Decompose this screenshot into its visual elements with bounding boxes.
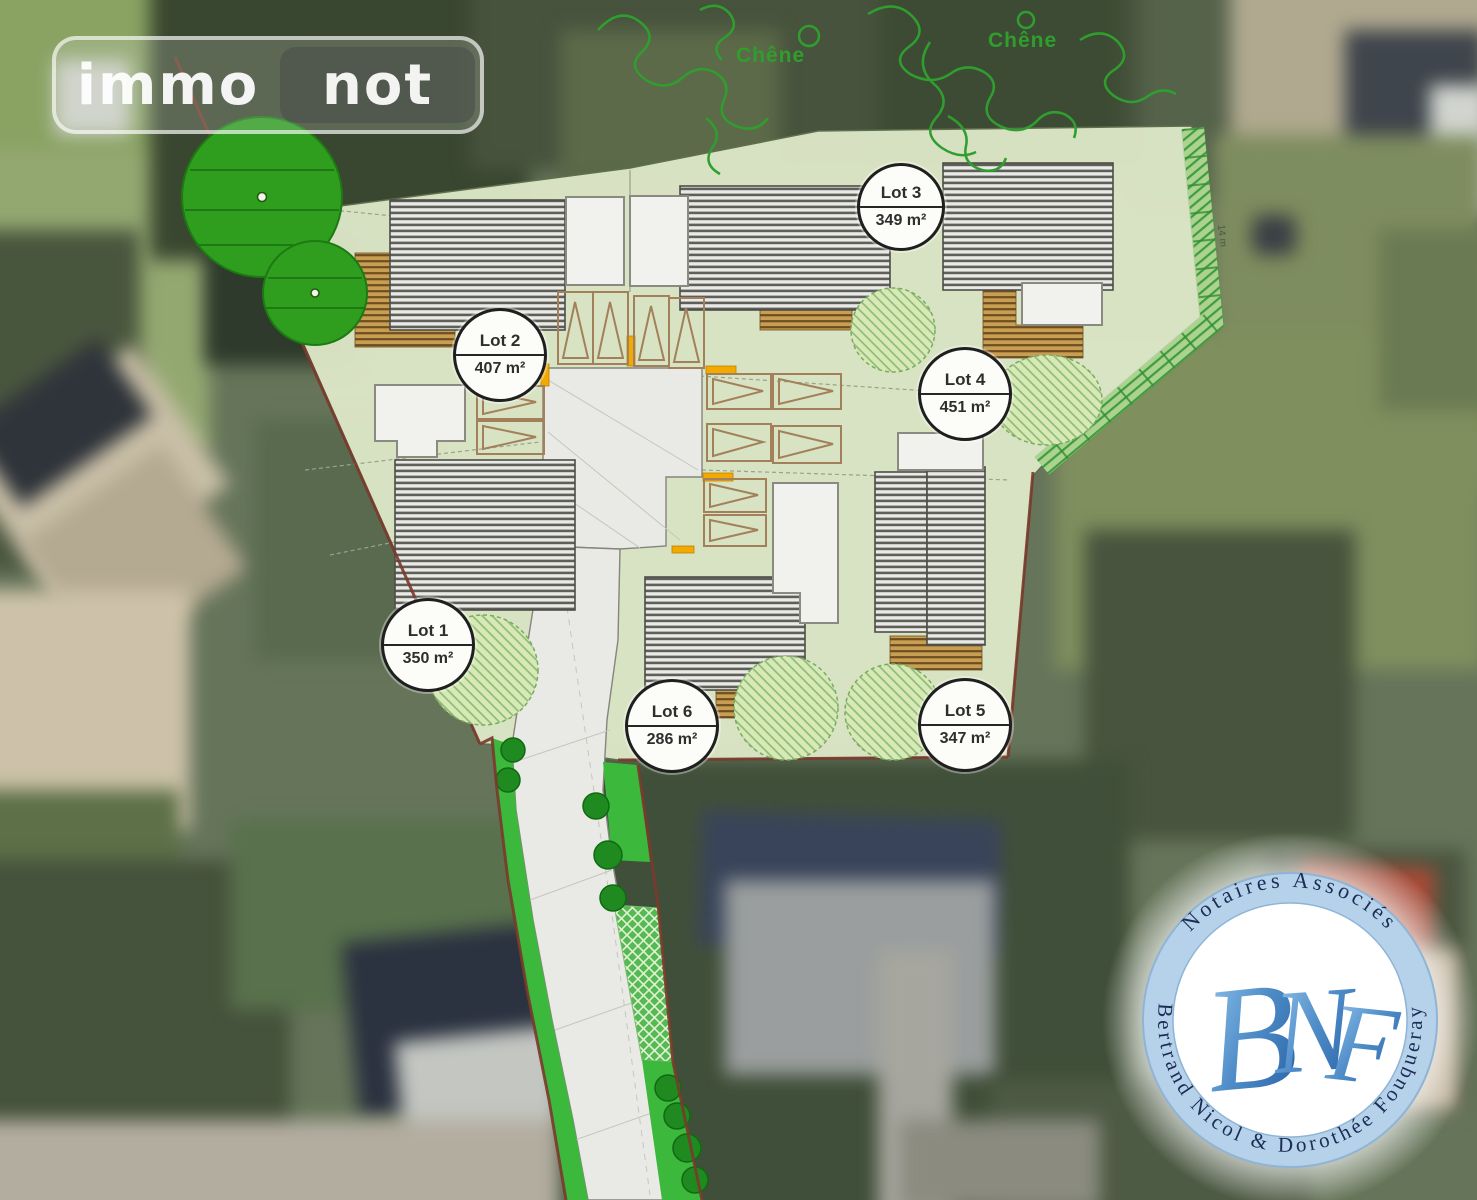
immonot-watermark: immo not [52,36,484,134]
hedge-measurement: 14 m [1215,224,1228,247]
house-lot2 [390,200,565,330]
lot-badge-5: Lot 5 347 m² [918,678,1012,772]
immonot-wordmark-immo: immo [56,53,280,118]
house-lot4 [943,163,1113,290]
lot-badge-3: Lot 3 349 m² [857,163,945,251]
tree-label-chene-left: Chêne [736,44,805,68]
tree-label-chene-right: Chêne [988,29,1057,53]
notary-seal: Notaires Associés Bertrand Nicol & Dorot… [1102,832,1477,1200]
svg-text:F: F [1321,980,1405,1111]
immonot-wordmark-not-box: not [280,47,475,123]
lot-badge-2: Lot 2 407 m² [453,308,547,402]
lot-badge-6: Lot 6 286 m² [625,679,719,773]
house-lot1 [395,460,575,610]
subdivision-plan: 14 m [0,0,1477,1200]
house-lot5b [927,467,985,645]
lot-badge-1: Lot 1 350 m² [381,598,475,692]
house-lot5a [875,472,927,632]
lot-badge-4: Lot 4 451 m² [918,347,1012,441]
aerial-site-plan: 14 m [0,0,1477,1200]
immonot-wordmark-not: not [322,53,433,118]
